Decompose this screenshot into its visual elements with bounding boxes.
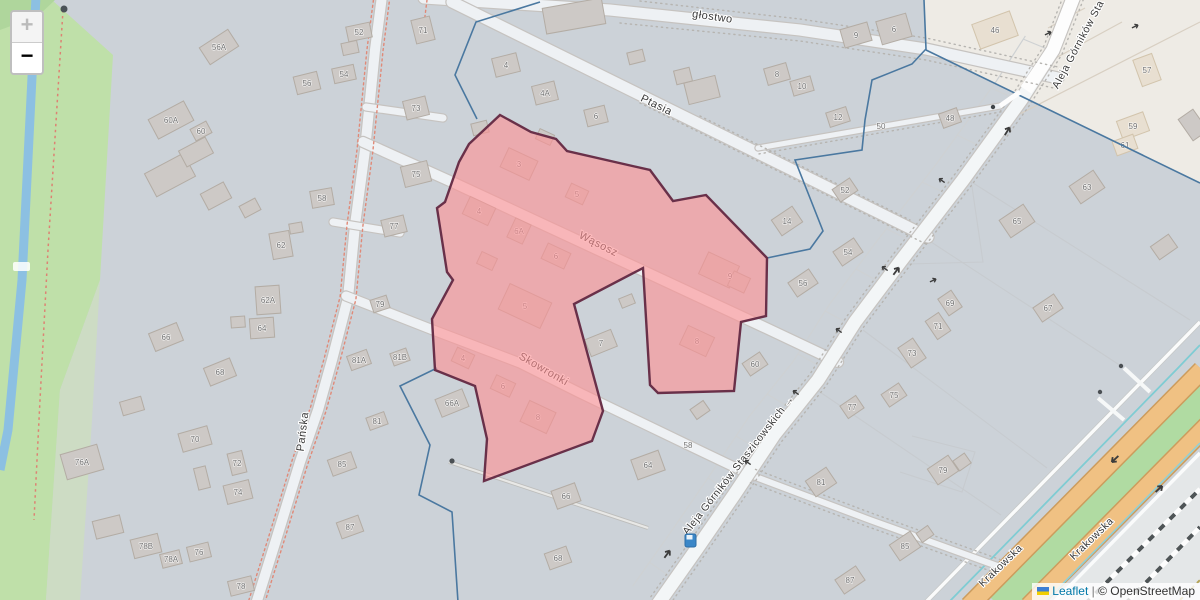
svg-text:4A: 4A [540, 89, 550, 98]
svg-text:87: 87 [346, 523, 355, 532]
svg-text:52: 52 [355, 28, 364, 37]
svg-text:60: 60 [197, 127, 206, 136]
svg-text:4: 4 [504, 61, 509, 70]
svg-text:56: 56 [303, 79, 312, 88]
svg-text:79: 79 [376, 300, 385, 309]
svg-text:71: 71 [934, 322, 943, 331]
svg-text:10: 10 [798, 82, 807, 91]
svg-text:68: 68 [554, 554, 563, 563]
svg-text:54: 54 [340, 70, 349, 79]
svg-text:81B: 81B [393, 353, 407, 362]
svg-text:87: 87 [846, 576, 855, 585]
svg-text:71: 71 [419, 26, 428, 35]
svg-text:85: 85 [338, 460, 347, 469]
svg-text:65: 65 [1013, 217, 1022, 226]
svg-text:7: 7 [599, 339, 604, 348]
svg-text:68: 68 [216, 368, 225, 377]
svg-text:70: 70 [191, 435, 200, 444]
svg-text:9: 9 [854, 31, 859, 40]
svg-text:56A: 56A [212, 43, 227, 52]
svg-text:76A: 76A [75, 458, 90, 467]
svg-text:59: 59 [1129, 122, 1138, 131]
svg-text:12: 12 [834, 113, 843, 122]
svg-text:79: 79 [939, 466, 948, 475]
svg-text:66: 66 [162, 333, 171, 342]
svg-text:50: 50 [877, 122, 886, 131]
svg-text:54: 54 [844, 248, 853, 257]
svg-text:77: 77 [848, 403, 857, 412]
svg-text:6: 6 [892, 25, 897, 34]
svg-text:57: 57 [1143, 66, 1152, 75]
svg-text:58: 58 [318, 194, 327, 203]
svg-text:6: 6 [594, 112, 599, 121]
svg-text:52: 52 [841, 186, 850, 195]
svg-text:75: 75 [890, 391, 899, 400]
svg-text:81: 81 [817, 478, 826, 487]
svg-text:56: 56 [799, 279, 808, 288]
svg-text:60: 60 [751, 360, 760, 369]
svg-text:62A: 62A [261, 296, 276, 305]
svg-text:66: 66 [562, 492, 571, 501]
svg-text:14: 14 [783, 217, 792, 226]
svg-text:75: 75 [412, 170, 421, 179]
svg-text:77: 77 [390, 222, 399, 231]
svg-text:46: 46 [991, 26, 1000, 35]
svg-text:69: 69 [946, 299, 955, 308]
svg-text:74: 74 [234, 488, 243, 497]
svg-text:78B: 78B [139, 542, 153, 551]
svg-text:85: 85 [901, 542, 910, 551]
svg-text:64: 64 [258, 324, 267, 333]
svg-text:78A: 78A [164, 555, 179, 564]
svg-text:62: 62 [277, 241, 286, 250]
svg-text:8: 8 [775, 70, 780, 79]
svg-text:78: 78 [237, 582, 246, 591]
svg-text:58: 58 [684, 441, 693, 450]
svg-text:64: 64 [644, 461, 653, 470]
svg-text:73: 73 [908, 349, 917, 358]
svg-text:73: 73 [412, 104, 421, 113]
svg-text:66A: 66A [445, 399, 460, 408]
svg-text:48: 48 [946, 114, 955, 123]
svg-text:63: 63 [1083, 183, 1092, 192]
svg-text:72: 72 [233, 459, 242, 468]
svg-text:76: 76 [195, 548, 204, 557]
svg-text:81A: 81A [352, 356, 367, 365]
svg-text:67: 67 [1044, 304, 1053, 313]
svg-text:60A: 60A [164, 116, 179, 125]
svg-text:81: 81 [373, 417, 382, 426]
